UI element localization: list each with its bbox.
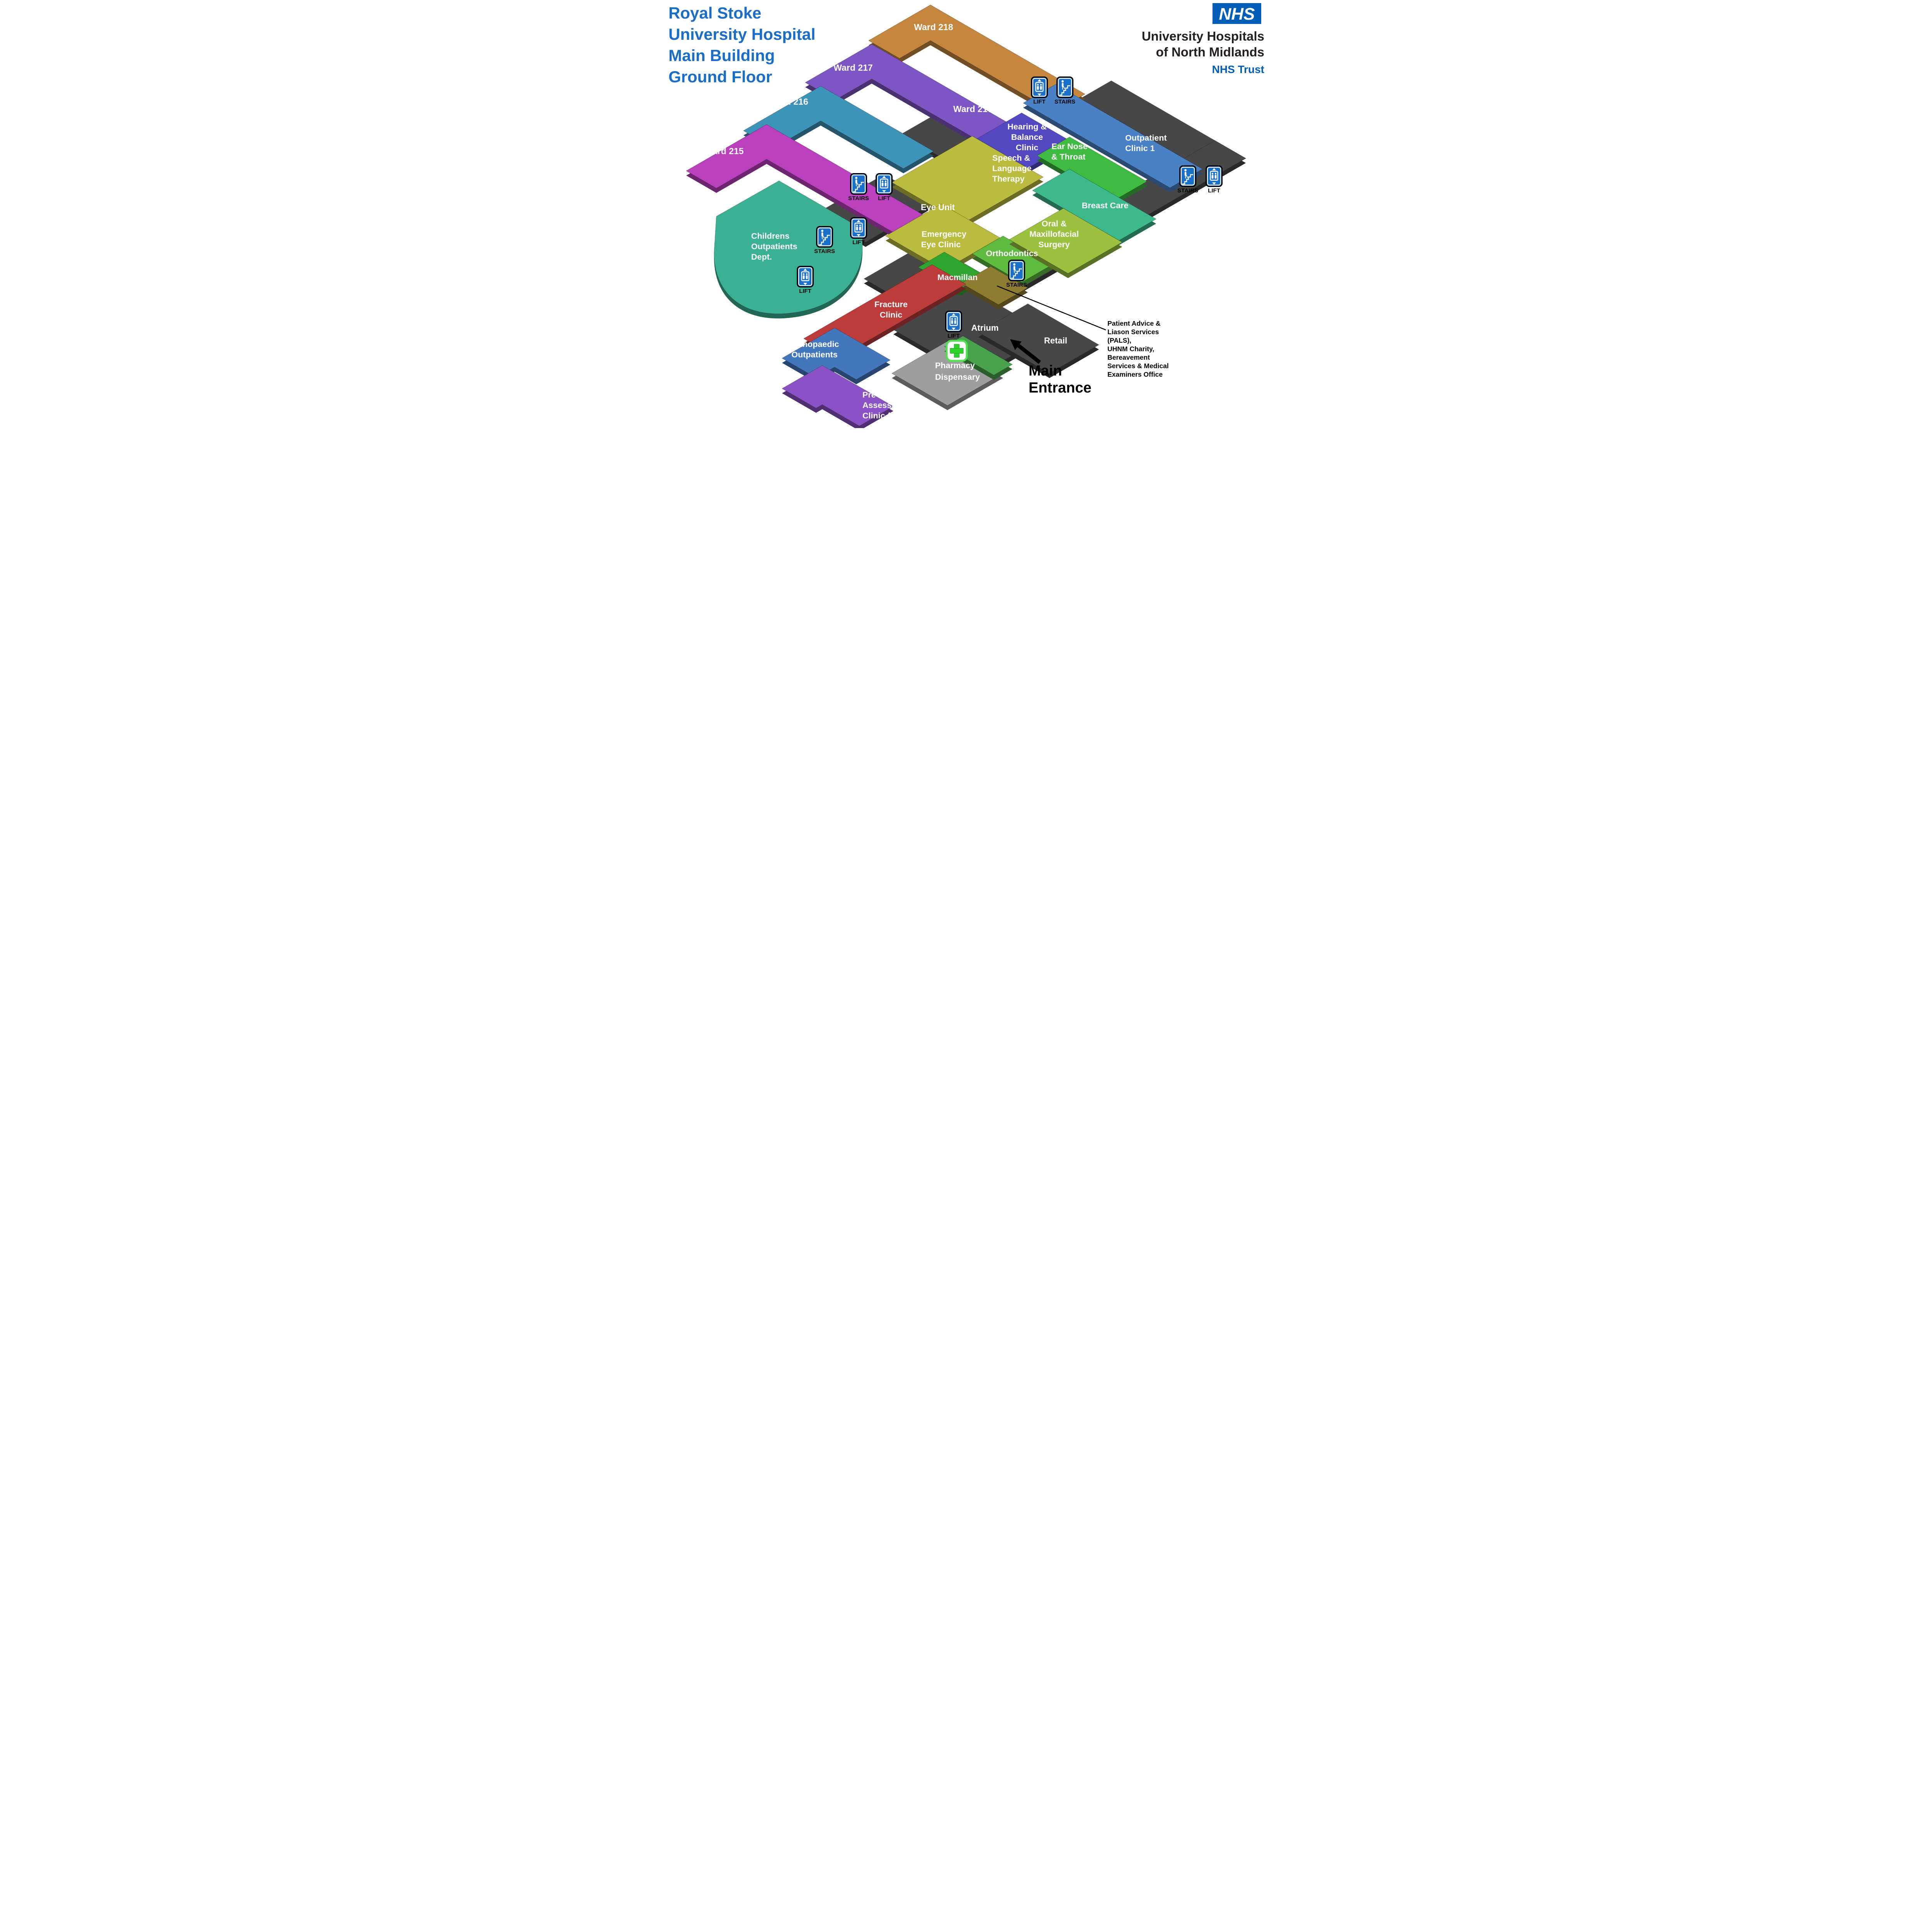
label-ward-217a: Ward 217A: [953, 104, 999, 114]
stairs-sign-label: STAIRS: [1006, 282, 1027, 288]
label-pharmacy-dispensary: Pharmacy: [935, 361, 975, 370]
label-orthopaedic-outpatients: Orthopaedic: [790, 340, 839, 349]
label-emergency-eye-clinic: Eye Clinic: [921, 240, 961, 249]
main-entrance-label: Entrance: [1029, 380, 1092, 396]
pals-note-line: Examiners Office: [1107, 371, 1163, 378]
label-pre-assessment-clinic: Assessment: [862, 401, 912, 410]
label-ear-nose-throat: Ear Nose: [1051, 142, 1087, 151]
pals-note-line: Services & Medical: [1107, 362, 1169, 370]
nhs-trust-label: NHS Trust: [1212, 63, 1264, 75]
label-eye-unit: Eye Unit: [921, 202, 955, 212]
label-childrens-outpatients: Childrens: [751, 231, 789, 241]
title-line: University Hospital: [668, 25, 815, 43]
label-ear-nose-throat: & Throat: [1051, 152, 1085, 161]
pals-note-line: Patient Advice &: [1107, 320, 1161, 327]
lift-icon: LIFT: [1032, 77, 1048, 105]
pharmacy-cross-icon: [947, 341, 967, 361]
label-hearing-balance-clinic: Clinic: [1016, 143, 1039, 152]
stairs-icon: STAIRS: [1177, 166, 1198, 194]
label-childrens-outpatients: Outpatients: [751, 242, 797, 251]
nhs-logo: NHS University Hospitals of North Midlan…: [1142, 3, 1264, 75]
label-speech-language-therapy: Therapy: [992, 174, 1025, 184]
nhs-org-line: University Hospitals: [1142, 29, 1264, 43]
label-oral-maxillofacial-surgery: Maxillofacial: [1029, 229, 1079, 239]
stairs-sign-label: STAIRS: [1177, 187, 1198, 194]
pals-note-line: Liason Services: [1107, 328, 1159, 336]
pals-note-line: Bereavement: [1107, 354, 1150, 361]
label-emergency-eye-clinic: Emergency: [922, 229, 966, 239]
pals-note-line: (PALS),: [1107, 337, 1131, 344]
page: Royal Stoke University Hospital Main Bui…: [663, 0, 1269, 428]
label-speech-language-therapy: Language: [992, 164, 1032, 173]
label-ward-215: Ward 215: [704, 146, 744, 156]
title-line: Ground Floor: [668, 68, 772, 86]
label-retail: Retail: [1044, 336, 1067, 345]
main-entrance-label: Main: [1029, 363, 1062, 379]
label-fracture-clinic: Fracture: [874, 300, 908, 309]
stairs-icon: STAIRS: [814, 227, 835, 255]
label-orthopaedic-outpatients: Outpatients: [791, 350, 837, 359]
lift-icon: LIFT: [876, 174, 892, 202]
lift-icon: LIFT: [946, 311, 962, 340]
stairs-icon: STAIRS: [1006, 260, 1027, 289]
label-ward-216: Ward 216: [769, 97, 808, 107]
lift-sign-label: LIFT: [1208, 187, 1220, 194]
label-hearing-balance-clinic: Hearing &: [1007, 122, 1047, 131]
lift-icon: LIFT: [798, 267, 813, 295]
label-outpatient-clinic-1: Outpatient: [1125, 133, 1167, 143]
page-title: Royal Stoke University Hospital Main Bui…: [668, 4, 815, 86]
lift-sign-label: LIFT: [878, 195, 890, 202]
label-atrium: Atrium: [971, 323, 999, 333]
lift-icon: LIFT: [1206, 166, 1222, 194]
label-pre-assessment-clinic: Pre: [862, 390, 876, 399]
label-outpatient-clinic-1: Clinic 1: [1125, 144, 1155, 153]
hospital-floor-map: Royal Stoke University Hospital Main Bui…: [663, 0, 1269, 428]
label-pharmacy-dispensary: Dispensary: [935, 372, 980, 382]
label-hearing-balance-clinic: Balance: [1011, 133, 1043, 142]
nhs-org-line: of North Midlands: [1156, 45, 1264, 59]
stairs-sign-label: STAIRS: [848, 195, 869, 202]
title-line: Royal Stoke: [668, 4, 761, 22]
label-ward-217: Ward 217: [833, 63, 872, 73]
lift-icon: LIFT: [851, 218, 867, 246]
nhs-logo-text: NHS: [1219, 5, 1255, 24]
lift-sign-label: LIFT: [1033, 99, 1046, 105]
stairs-icon: STAIRS: [848, 174, 869, 202]
label-oral-maxillofacial-surgery: Surgery: [1038, 240, 1070, 249]
lift-sign-label: LIFT: [852, 239, 865, 246]
label-orthodontics: Orthodontics: [986, 249, 1038, 258]
pals-note-line: UHNM Charity,: [1107, 345, 1154, 353]
label-fracture-clinic: Clinic: [880, 310, 903, 320]
label-breast-care: Breast Care: [1082, 201, 1129, 210]
lift-sign-label: LIFT: [799, 288, 811, 294]
label-macmillan: Macmillan: [937, 273, 978, 282]
stairs-icon: STAIRS: [1054, 77, 1075, 105]
pals-note: Patient Advice & Liason Services (PALS),…: [1107, 320, 1169, 378]
title-line: Main Building: [668, 46, 775, 65]
label-childrens-outpatients: Dept.: [751, 252, 772, 262]
stairs-sign-label: STAIRS: [814, 248, 835, 255]
label-oral-maxillofacial-surgery: Oral &: [1042, 219, 1067, 228]
label-speech-language-therapy: Speech &: [992, 153, 1030, 163]
stairs-sign-label: STAIRS: [1054, 99, 1075, 105]
label-pre-assessment-clinic: Clinic (PreAMS): [862, 411, 925, 420]
label-ward-218: Ward 218: [914, 22, 953, 32]
lift-sign-label: LIFT: [947, 333, 960, 339]
